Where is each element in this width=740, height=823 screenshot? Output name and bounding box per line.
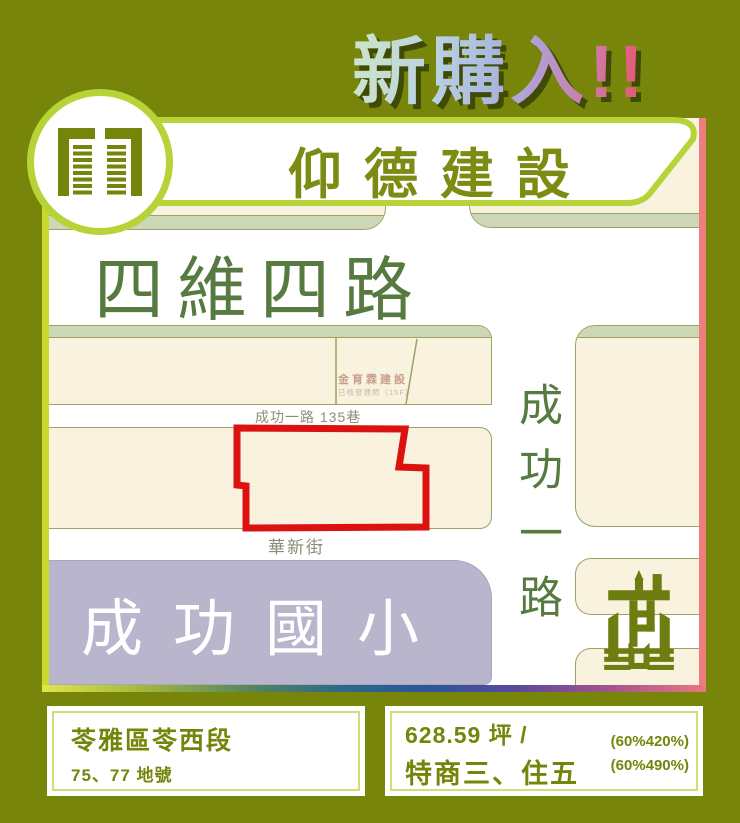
map-block-east-1 bbox=[575, 325, 699, 527]
parcel-zoning-box: 628.59 坪 / 特商三、住五 (60%420%) (60%490%) bbox=[385, 706, 703, 796]
block-edge-band bbox=[575, 325, 699, 338]
lot-numbers-label: 75、77 地號 bbox=[71, 761, 365, 786]
road-label-top: 四維四路 bbox=[94, 234, 426, 335]
neighbor-note: 已核發建照（15F） bbox=[338, 388, 413, 397]
road-label-vertical: 成功一路 bbox=[504, 382, 568, 638]
new-purchase-heading: 新購入!! bbox=[352, 12, 648, 119]
construction-rig-icon bbox=[601, 568, 677, 674]
map-block-neighbor bbox=[49, 325, 492, 405]
road-label-lane: 成功一路 135巷 bbox=[255, 407, 361, 427]
parcel-address-box: 苓雅區苓西段 75、77 地號 bbox=[47, 706, 365, 796]
company-title: 仰德建設 bbox=[200, 130, 680, 209]
map-block-subject bbox=[49, 427, 492, 529]
neighbor-parcel-label: 金育霖建設 已核發建照（15F） bbox=[338, 374, 413, 397]
area-label: 628.59 坪 / bbox=[405, 716, 579, 750]
zoning-label: 特商三、住五 bbox=[405, 752, 579, 791]
block-edge-band bbox=[469, 213, 699, 228]
building-towers-icon bbox=[54, 122, 146, 202]
neighbor-name: 金育霖建設 bbox=[338, 374, 413, 388]
map-frame-bottom-gradient bbox=[42, 685, 706, 692]
company-logo-badge bbox=[27, 89, 173, 235]
school-label: 成功國小 bbox=[49, 578, 449, 668]
district-section-label: 苓雅區苓西段 bbox=[71, 721, 365, 757]
coverage-ratio-1: (60%420%) bbox=[611, 733, 689, 750]
school-block: 成功國小 bbox=[49, 560, 492, 685]
coverage-ratio-2: (60%490%) bbox=[611, 757, 689, 774]
road-label-street: 華新街 bbox=[268, 533, 325, 558]
